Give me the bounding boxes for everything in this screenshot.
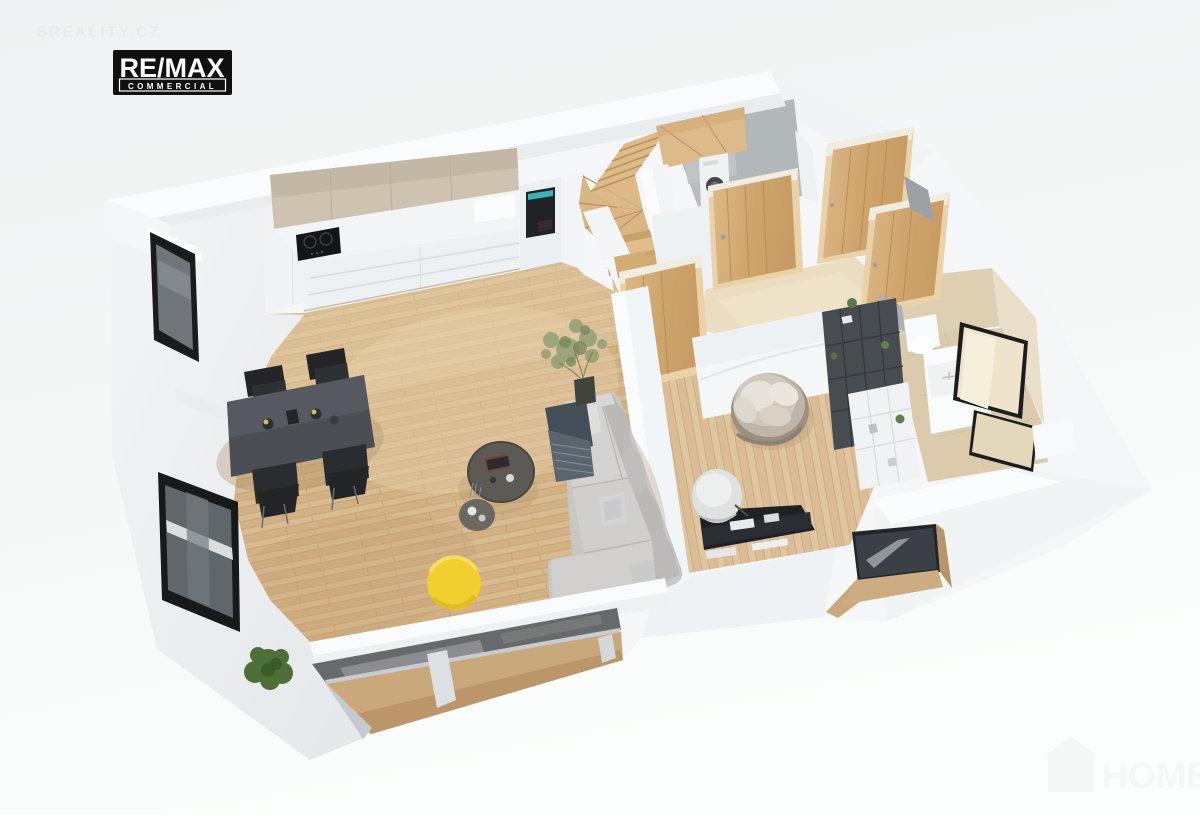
svg-text:SREALITY.CZ: SREALITY.CZ [36, 24, 161, 41]
svg-text:HOMES: HOMES [1102, 755, 1200, 796]
svg-text:COMMERCIAL: COMMERCIAL [128, 82, 217, 91]
